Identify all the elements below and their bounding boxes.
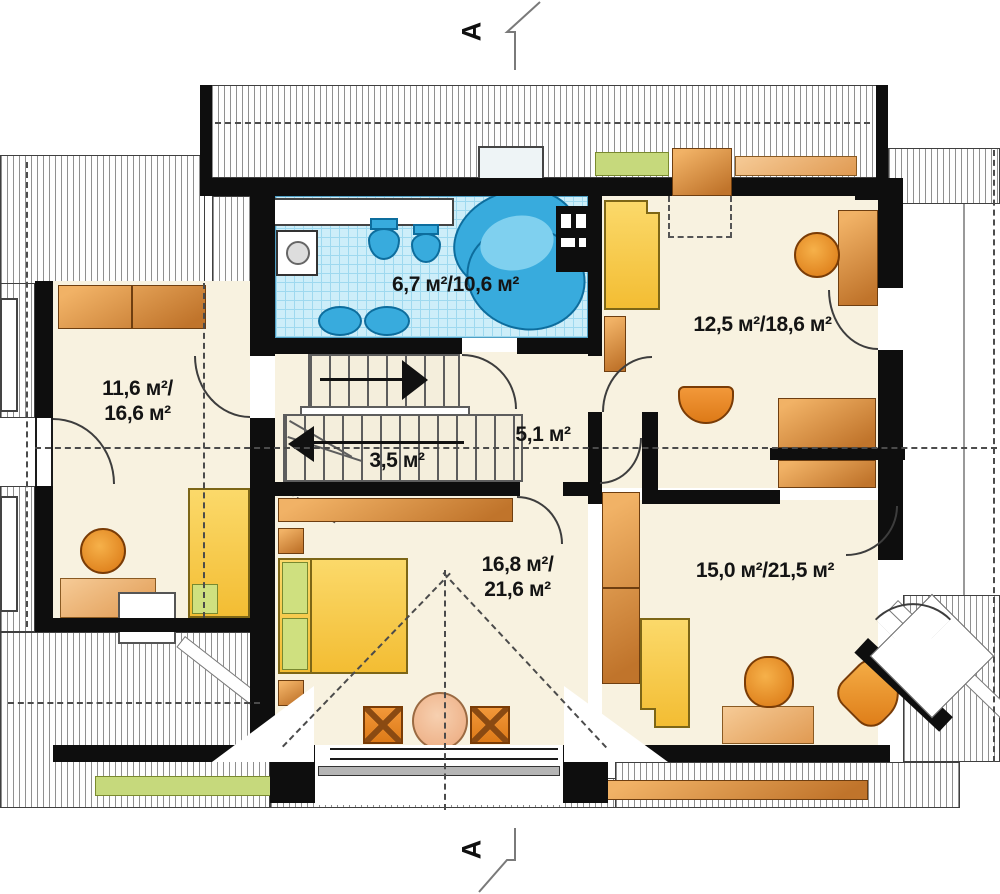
room-bottom-right-area-label: 15,0 м²/21,5 м² xyxy=(645,558,885,583)
sink-2 xyxy=(364,306,410,336)
toilet xyxy=(366,218,402,262)
stairs-up-arrow xyxy=(402,360,428,400)
wall-rightrooms-high xyxy=(770,448,905,460)
pillow-bottom-room-2 xyxy=(282,618,308,670)
roof-height-dash-right xyxy=(993,150,995,762)
roof-hatch-top-right xyxy=(888,148,1000,204)
blanket-line xyxy=(310,560,312,672)
chair-balcony-right xyxy=(470,706,510,744)
shelf-top-right-roof xyxy=(735,156,857,176)
roof-height-dash-top xyxy=(215,122,870,124)
bathroom-area-label: 6,7 м²/10,6 м² xyxy=(348,272,563,297)
wall-center-left-upper xyxy=(250,196,275,356)
double-bed-bottom-room xyxy=(278,558,408,674)
section-marker-bottom: A xyxy=(456,840,487,860)
sink xyxy=(318,306,362,336)
wall-left-room-bottom xyxy=(35,618,267,632)
dresser-dormer xyxy=(672,148,732,196)
wardrobe-left-room xyxy=(58,285,206,329)
office-chair-bottom-right xyxy=(744,656,794,708)
bedroom-bottom-area-line2: 21,6 м² xyxy=(445,577,590,602)
bed-left-room xyxy=(188,488,250,618)
wall-midroom-top-a xyxy=(267,482,520,496)
wall-bath-right-upper xyxy=(588,196,602,356)
bed-bottom-right-room xyxy=(640,618,690,728)
wall-bathroom-bottom-a xyxy=(267,338,462,354)
roof-height-dash-left-room xyxy=(203,283,205,618)
wall-midroom-top-b xyxy=(563,482,590,496)
chair-balcony-left xyxy=(363,706,403,744)
planter-left-upper xyxy=(0,298,18,412)
office-chair-top-right-room xyxy=(794,232,840,278)
bidet-bowl xyxy=(411,233,441,263)
bedroom-top-right-area-label: 12,5 м²/18,6 м² xyxy=(650,312,875,337)
chimney-flue-3 xyxy=(561,238,575,247)
pillow-left-room xyxy=(192,584,218,614)
wall-left-lower xyxy=(35,486,53,632)
shelf-bottom-room xyxy=(278,498,513,522)
chimney-flue-4 xyxy=(579,238,586,247)
wall-center-left-lower xyxy=(250,418,275,632)
planter-left-lower xyxy=(0,496,18,612)
bed-top-right-room xyxy=(604,200,660,310)
chimney xyxy=(556,206,592,272)
planter-bottom-right xyxy=(600,780,868,800)
wall-right-corner-chunk xyxy=(855,178,903,200)
cabinet-top-right-room xyxy=(604,316,626,372)
wardrobe-bottom-right xyxy=(602,492,640,684)
bedroom-left-area-label: 11,6 м²/ 16,6 м² xyxy=(70,376,205,426)
bed-notch xyxy=(640,708,656,728)
floor-plan: 6,7 м²/10,6 м² 12,5 м²/18,6 м² 11,6 м²/ … xyxy=(0,0,1000,894)
built-in-closet-lower xyxy=(778,460,876,488)
roof-hatch-left-corner xyxy=(212,196,253,283)
roof-hatch-left-upper xyxy=(0,155,205,285)
stairs-down-line xyxy=(314,441,464,444)
chimney-flue-2 xyxy=(576,214,586,228)
bedroom-bottom-area-label: 16,8 м²/ 21,6 м² xyxy=(445,552,590,602)
wall-top-band-right-end xyxy=(876,85,888,180)
wardrobe-divider xyxy=(131,286,133,328)
staircase-area-label: 3,5 м² xyxy=(342,448,452,473)
planter-bottom-left xyxy=(95,776,290,796)
planter-top-right xyxy=(595,152,669,176)
stairs-up-line xyxy=(320,378,404,381)
toilet-bowl xyxy=(368,228,400,260)
bed-fold-corner xyxy=(646,200,660,214)
bedroom-left-area-line2: 16,6 м² xyxy=(70,401,205,426)
section-dash-vertical xyxy=(444,570,446,810)
balcony-railing xyxy=(318,766,560,776)
pillow-bottom-room xyxy=(282,562,308,614)
hall-area-label: 5,1 м² xyxy=(498,422,588,447)
wall-rightrooms-low xyxy=(658,490,780,504)
round-table xyxy=(412,692,468,750)
bedroom-bottom-area-line1: 16,8 м²/ xyxy=(445,552,590,577)
wardrobe-divider-2 xyxy=(603,587,639,589)
dormer-dashed-outline xyxy=(668,196,732,238)
ridge-dashed-line xyxy=(35,447,997,449)
washing-machine-drum xyxy=(286,241,310,265)
stairs-upper-flight xyxy=(308,354,460,410)
section-marker-top: A xyxy=(456,22,487,42)
bidet xyxy=(410,224,442,264)
roof-height-dash-bottom xyxy=(8,702,260,704)
wall-right-a xyxy=(878,200,903,288)
wall-right-b xyxy=(878,350,903,448)
window-left-wall xyxy=(35,418,53,486)
wall-left-upper xyxy=(35,281,53,418)
office-chair-left-room xyxy=(80,528,126,574)
desk-bottom-right-room xyxy=(722,706,814,744)
right-terrace-edge xyxy=(963,204,965,595)
wall-hall-right xyxy=(642,412,658,504)
chimney-flue xyxy=(561,214,571,228)
stairs-down-arrow xyxy=(288,426,314,462)
bedroom-left-area-line1: 11,6 м²/ xyxy=(70,376,205,401)
washing-machine xyxy=(276,230,318,276)
wall-top-main xyxy=(200,178,890,196)
roof-height-dash-left xyxy=(26,162,28,627)
wall-bathroom-bottom-b xyxy=(517,338,590,354)
nightstand-top xyxy=(278,528,304,554)
built-in-closet-upper xyxy=(778,398,876,448)
bathroom-counter xyxy=(272,198,454,226)
wall-top-band-left-end xyxy=(200,85,212,180)
